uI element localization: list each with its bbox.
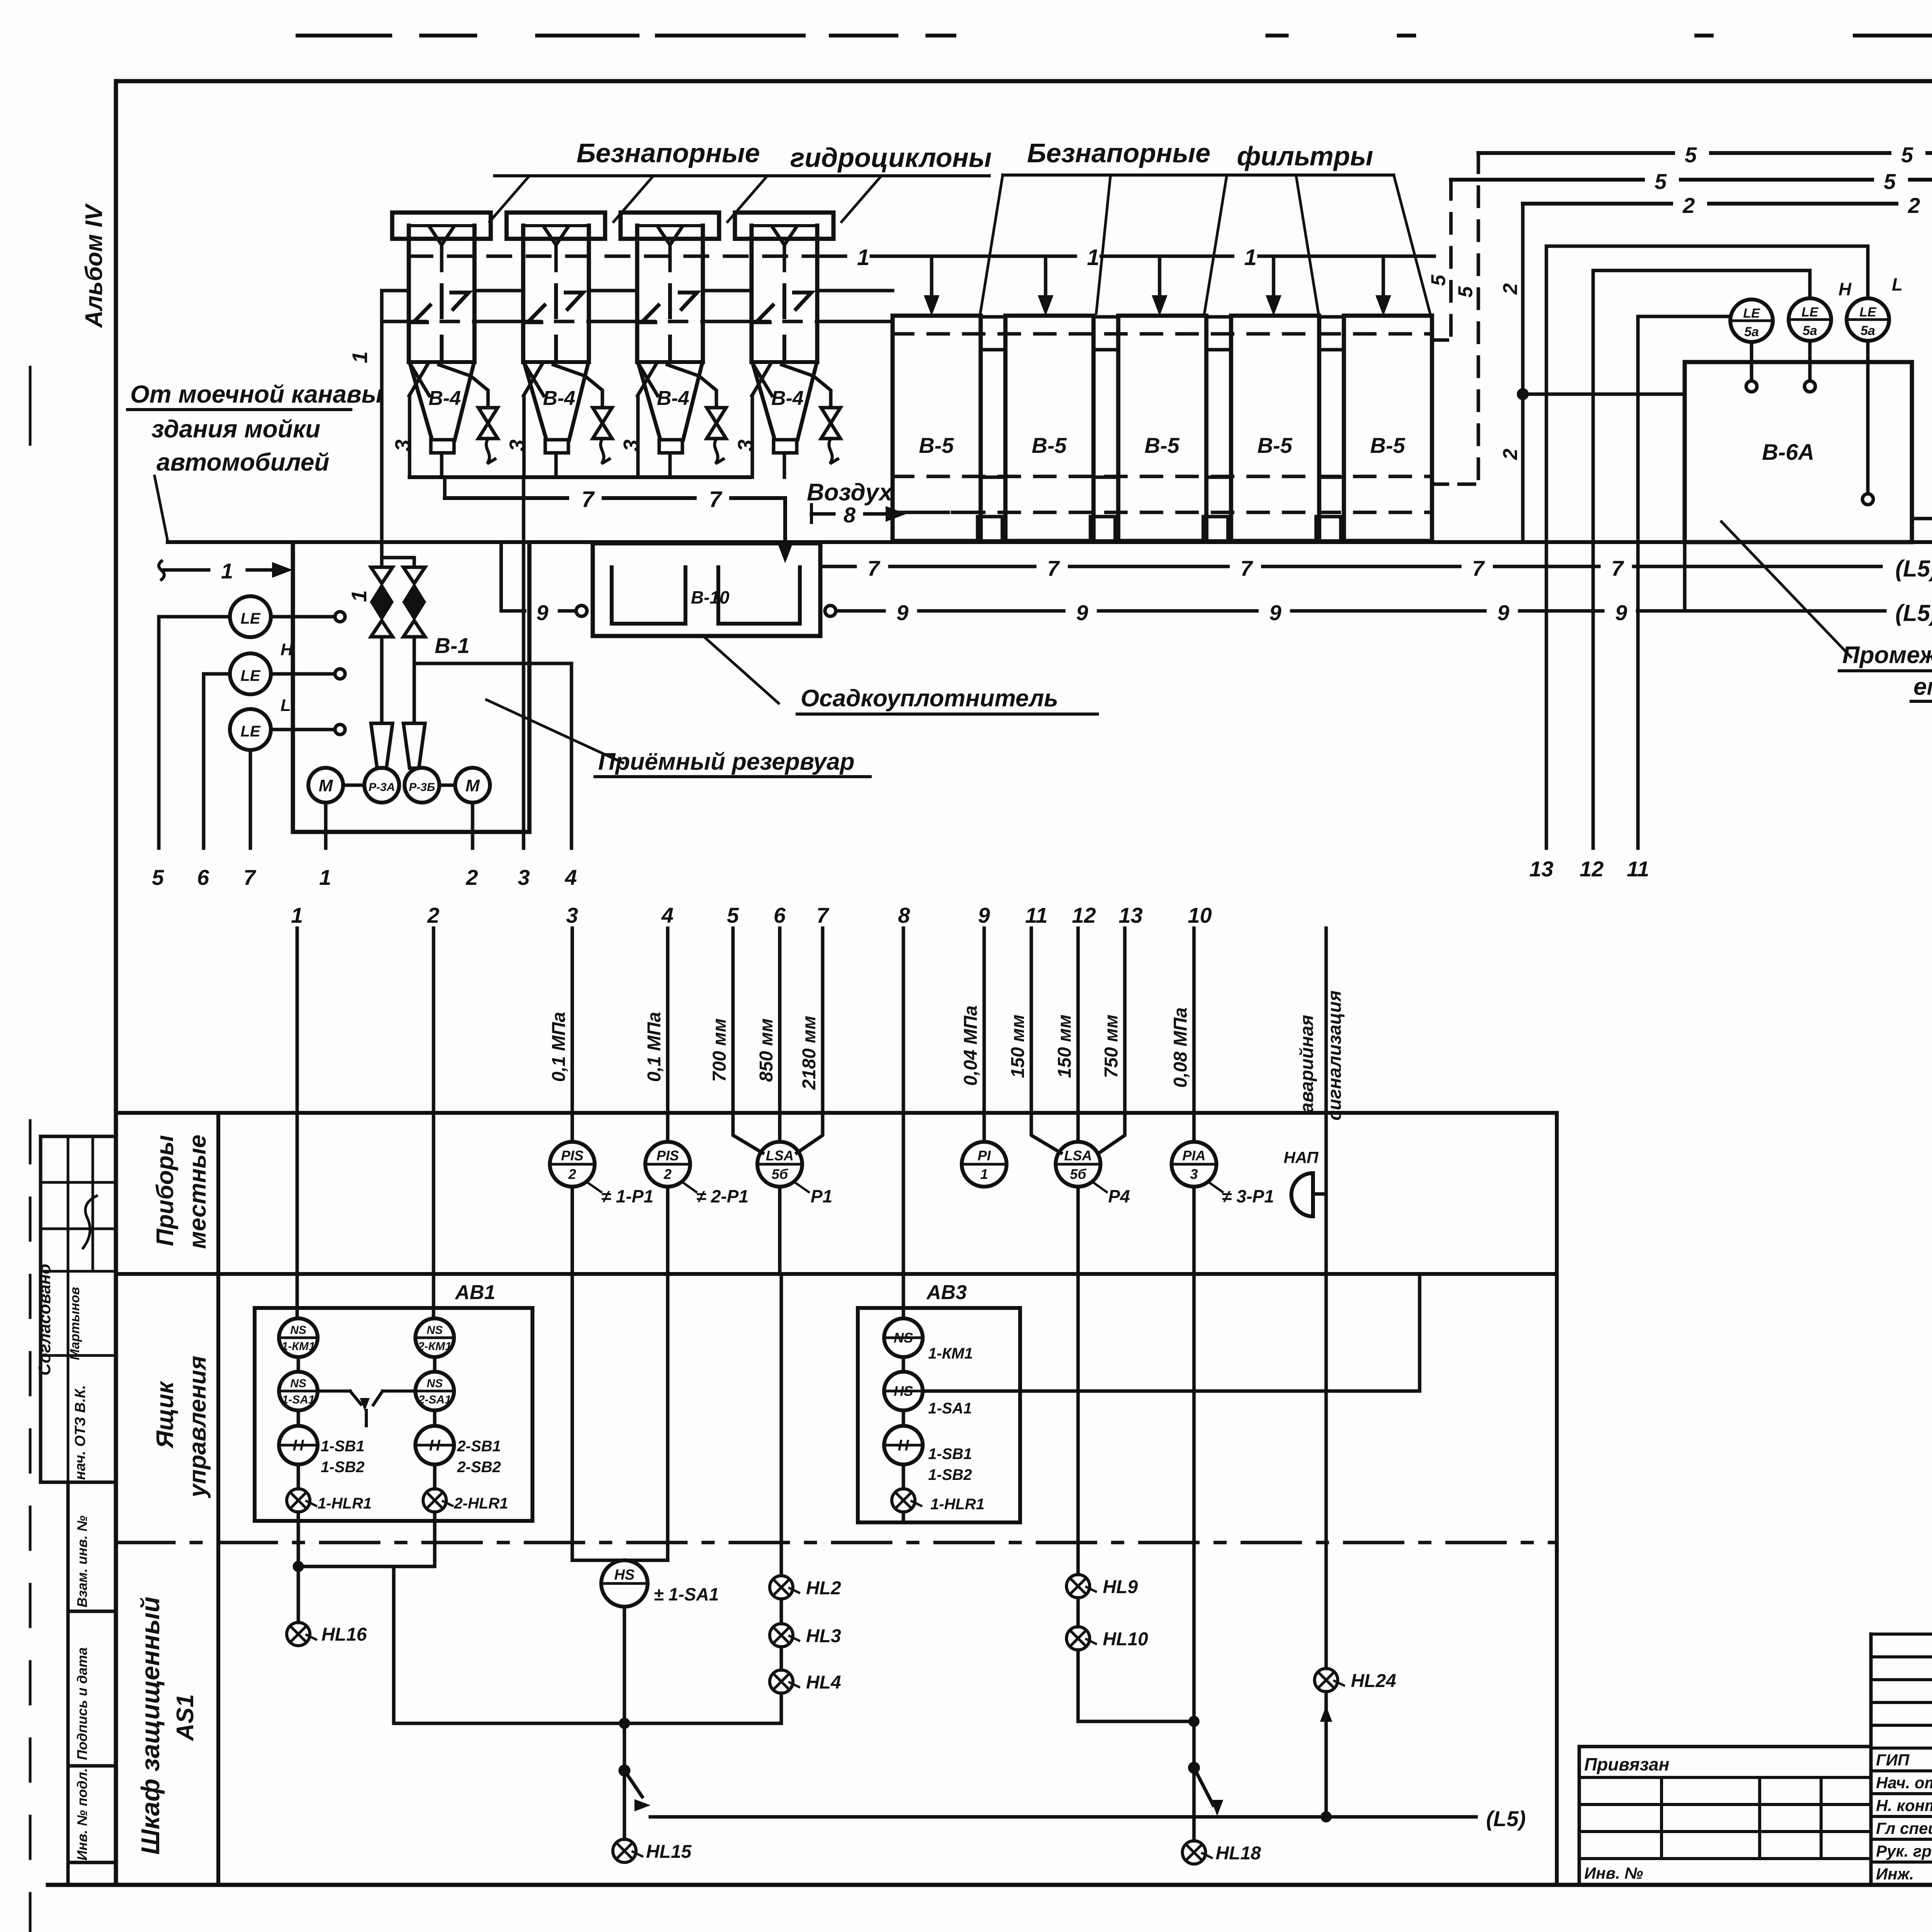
svg-text:1: 1 [1087,245,1099,270]
svg-text:(L5): (L5) [1486,1806,1526,1831]
svg-text:Инв. № подл.: Инв. № подл. [74,1768,90,1861]
svg-text:≠ 1-Р1: ≠ 1-Р1 [601,1186,653,1206]
svg-text:2: 2 [1499,283,1522,295]
svg-text:Воздух: Воздух [807,479,893,506]
svg-text:5: 5 [1427,274,1450,286]
svg-text:12: 12 [1580,857,1604,881]
svg-text:5б: 5б [1070,1166,1087,1182]
svg-text:Н: Н [1838,279,1852,299]
svg-text:13: 13 [1529,857,1553,881]
svg-text:7: 7 [709,487,723,512]
svg-text:4: 4 [661,903,673,927]
svg-text:5: 5 [1655,169,1667,194]
svg-text:HL18: HL18 [1216,1843,1261,1864]
svg-text:PIS: PIS [561,1148,583,1163]
svg-text:Мартынов: Мартынов [68,1287,82,1360]
svg-text:1: 1 [348,351,372,363]
svg-text:0,1 МПа: 0,1 МПа [549,1012,569,1082]
svg-text:5а: 5а [1861,323,1875,338]
svg-text:LE: LE [1743,306,1760,321]
svg-text:LSA: LSA [1064,1148,1092,1163]
svg-text:0,08 МПа: 0,08 МПа [1170,1007,1191,1088]
svg-text:11: 11 [1025,903,1048,927]
svg-text:7: 7 [1472,556,1485,580]
svg-text:нач. ОТЗ В.К.: нач. ОТЗ В.К. [72,1385,88,1480]
svg-text:5а: 5а [1803,323,1817,338]
svg-text:2-КМ1: 2-КМ1 [418,1340,452,1353]
svg-text:LE: LE [240,723,260,740]
svg-text:От моечной канавы: От моечной канавы [130,380,383,408]
svg-text:1-SВ1: 1-SВ1 [928,1446,972,1463]
svg-text:5б: 5б [772,1166,789,1182]
svg-text:150 мм: 150 мм [1008,1015,1028,1078]
svg-text:HL2: HL2 [806,1578,841,1599]
svg-text:АВ1: АВ1 [454,1281,495,1304]
svg-text:HL15: HL15 [646,1842,692,1862]
svg-text:1-SA1: 1-SA1 [282,1393,315,1406]
svg-text:В-1: В-1 [435,633,469,658]
svg-text:PI: PI [978,1148,991,1163]
svg-text:Гл спец.: Гл спец. [1876,1819,1932,1837]
svg-text:AS1: AS1 [172,1694,199,1742]
svg-text:В-5: В-5 [919,433,954,457]
svg-text:В-4: В-4 [771,387,804,410]
svg-text:Безнапорные: Безнапорные [577,138,760,168]
svg-text:7: 7 [1611,556,1624,580]
svg-text:Подпись и дата: Подпись и дата [74,1647,90,1760]
svg-text:L: L [281,696,291,715]
svg-text:850 мм: 850 мм [756,1019,777,1082]
svg-text:2: 2 [568,1166,576,1182]
svg-text:2-SВ1: 2-SВ1 [457,1438,501,1455]
svg-text:ГИП: ГИП [1876,1751,1910,1769]
svg-text:12: 12 [1072,903,1096,927]
svg-text:2: 2 [1682,193,1695,218]
svg-text:7: 7 [1047,556,1060,580]
svg-text:7: 7 [582,487,595,512]
svg-text:3: 3 [566,903,578,927]
svg-text:(L5): (L5) [1895,600,1932,626]
svg-text:NS: NS [427,1377,443,1390]
svg-text:В-5: В-5 [1370,433,1405,457]
svg-text:9: 9 [978,903,990,927]
svg-text:8: 8 [898,903,910,927]
svg-text:Нач. отд.: Нач. отд. [1876,1774,1932,1792]
svg-text:Взам. инв. №: Взам. инв. № [74,1515,90,1607]
svg-text:6: 6 [774,903,786,927]
svg-text:емкость: емкость [1913,673,1932,700]
svg-text:Р1: Р1 [811,1186,832,1206]
svg-text:0,1 МПа: 0,1 МПа [644,1012,665,1082]
svg-text:7: 7 [243,865,257,889]
svg-text:NS: NS [290,1324,306,1337]
svg-text:1: 1 [347,590,371,602]
svg-text:11: 11 [1627,857,1649,881]
svg-text:5: 5 [152,865,164,889]
svg-text:В-4: В-4 [543,387,575,410]
svg-text:Шкаф защищенный: Шкаф защищенный [136,1597,165,1855]
svg-text:HS: HS [614,1567,635,1583]
svg-text:LE: LE [240,667,260,684]
svg-text:Р4: Р4 [1108,1186,1130,1206]
svg-text:В-5: В-5 [1145,433,1180,457]
svg-text:3: 3 [518,865,530,889]
svg-text:7: 7 [816,903,830,927]
svg-text:HL24: HL24 [1351,1671,1396,1691]
svg-text:NS: NS [427,1324,443,1337]
svg-text:9: 9 [1269,600,1281,625]
svg-text:HL10: HL10 [1103,1629,1148,1650]
svg-text:Инв. №: Инв. № [1584,1864,1643,1882]
svg-text:Осадкоуплотнитель: Осадкоуплотнитель [801,685,1058,712]
svg-text:АВ3: АВ3 [926,1281,967,1304]
svg-text:2: 2 [1499,449,1522,460]
svg-text:700 мм: 700 мм [709,1019,730,1082]
svg-text:1: 1 [980,1166,988,1182]
svg-text:2: 2 [663,1166,672,1182]
svg-text:М: М [466,776,480,795]
svg-text:местные: местные [184,1134,211,1249]
svg-text:сигнализация: сигнализация [1325,990,1345,1121]
svg-text:Безнапорные: Безнапорные [1027,138,1211,168]
svg-text:9: 9 [1615,600,1627,625]
svg-text:≠ 3-Р1: ≠ 3-Р1 [1222,1186,1274,1206]
svg-text:Инж.: Инж. [1876,1865,1914,1883]
svg-text:В-4: В-4 [657,387,689,410]
svg-text:5: 5 [1901,143,1913,167]
svg-text:(L5): (L5) [1895,556,1932,582]
svg-text:9: 9 [896,600,908,625]
svg-text:2180 мм: 2180 мм [799,1016,820,1090]
svg-text:1: 1 [1244,245,1257,270]
svg-text:В-4: В-4 [429,387,461,410]
svg-text:Приёмный резервуар: Приёмный резервуар [598,748,855,775]
svg-text:автомобилей: автомобилей [156,448,329,476]
svg-text:Приборы: Приборы [152,1135,179,1246]
svg-text:9: 9 [1076,600,1088,625]
svg-text:В-5: В-5 [1257,433,1293,457]
svg-text:1: 1 [291,903,303,927]
svg-text:1: 1 [857,245,869,270]
svg-text:LE: LE [240,610,260,627]
svg-text:Альбом IV: Альбом IV [81,203,107,328]
svg-text:Привязан: Привязан [1584,1754,1669,1774]
svg-text:фильтры: фильтры [1237,141,1373,171]
svg-text:1-КМ1: 1-КМ1 [928,1345,973,1362]
svg-text:1-SВ2: 1-SВ2 [928,1466,972,1483]
svg-text:1-SВ2: 1-SВ2 [321,1459,364,1476]
svg-text:Рук. гр.: Рук. гр. [1876,1842,1932,1860]
svg-text:HL3: HL3 [806,1626,841,1646]
svg-text:HL4: HL4 [806,1672,841,1693]
svg-text:LE: LE [1859,305,1877,320]
svg-text:1-HLR1: 1-HLR1 [318,1495,372,1512]
svg-text:здания мойки: здания мойки [151,415,320,443]
svg-text:2: 2 [1908,193,1920,218]
svg-text:9: 9 [536,600,548,625]
svg-text:LE: LE [1801,305,1819,320]
svg-text:13: 13 [1119,903,1143,927]
svg-text:9: 9 [1497,600,1509,625]
svg-text:± 1-SA1: ± 1-SA1 [654,1584,719,1604]
svg-text:3: 3 [1190,1166,1198,1182]
svg-text:1-КМ1: 1-КМ1 [282,1340,315,1353]
svg-text:2: 2 [466,865,478,889]
svg-text:2-SВ2: 2-SВ2 [457,1459,501,1476]
svg-text:4: 4 [565,865,577,889]
svg-text:В-5: В-5 [1032,433,1067,457]
svg-text:5а: 5а [1744,325,1759,339]
svg-text:1: 1 [319,865,331,889]
svg-text:В-10: В-10 [691,587,730,607]
svg-text:1: 1 [221,559,233,583]
svg-text:Н. контр.: Н. контр. [1876,1796,1932,1815]
svg-text:М: М [319,776,333,795]
svg-text:≠ 2-Р1: ≠ 2-Р1 [696,1186,748,1206]
svg-text:10: 10 [1188,903,1212,927]
svg-text:0,04 МПа: 0,04 МПа [961,1005,981,1086]
svg-text:гидроциклоны: гидроциклоны [790,143,992,173]
svg-text:L: L [1892,274,1903,294]
svg-text:NS: NS [290,1377,306,1390]
svg-text:1-SВ1: 1-SВ1 [321,1438,364,1455]
svg-text:PIS: PIS [656,1148,679,1163]
svg-text:7: 7 [1240,556,1253,580]
svg-text:Р-3А: Р-3А [369,781,395,794]
svg-text:Р-3Б: Р-3Б [409,781,435,794]
svg-text:HL16: HL16 [321,1624,367,1645]
svg-text:В-6А: В-6А [1762,440,1814,465]
svg-text:Н: Н [281,640,293,659]
svg-text:8: 8 [844,503,856,527]
svg-text:5: 5 [1685,143,1697,167]
svg-text:LSA: LSA [766,1148,794,1163]
svg-text:НАП: НАП [1284,1148,1319,1167]
svg-text:1-HLR1: 1-HLR1 [930,1496,985,1513]
svg-text:Согласовано: Согласовано [35,1264,54,1376]
svg-text:6: 6 [197,865,209,889]
svg-text:Ящик: Ящик [152,1381,179,1449]
svg-text:аварийная: аварийная [1297,1015,1317,1113]
svg-text:2-HLR1: 2-HLR1 [454,1495,508,1512]
svg-text:управления: управления [184,1356,211,1498]
svg-text:750 мм: 750 мм [1101,1015,1122,1078]
svg-text:5: 5 [1454,286,1477,298]
svg-text:150 мм: 150 мм [1054,1015,1075,1078]
svg-text:7: 7 [867,556,881,580]
svg-text:2: 2 [427,903,439,927]
svg-text:HL9: HL9 [1103,1577,1138,1597]
svg-text:PIA: PIA [1182,1148,1206,1163]
svg-text:1-SA1: 1-SA1 [928,1400,972,1417]
svg-text:2-SA1: 2-SA1 [418,1393,451,1406]
svg-text:5: 5 [727,903,739,927]
svg-text:Промежуточная: Промежуточная [1842,642,1932,668]
svg-text:5: 5 [1884,169,1896,194]
